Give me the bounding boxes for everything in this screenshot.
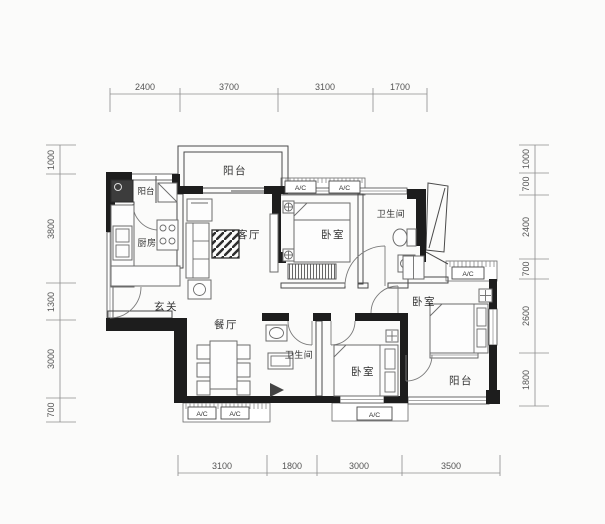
toilet-tank [407,229,416,246]
bedroom-right-door-arc [371,286,398,313]
label-bedroom-top: 卧室 [321,228,345,241]
label-dining: 餐厅 [214,318,238,331]
bath-bottom-door-arc [288,321,312,345]
side-table [188,280,211,299]
label-bath-top: 卫生间 [377,208,406,219]
dim-bottom-1: 3100 [212,461,232,471]
sofa [186,223,209,278]
armchair [187,199,212,221]
rug [212,230,239,258]
label-bedroom-right: 卧室 [412,295,436,308]
stove [157,220,178,250]
dim-right-3: 2400 [521,217,531,237]
label-living: 客厅 [237,228,261,241]
chair [197,345,210,359]
label-bath-bottom: 卫生间 [285,349,314,360]
dim-top-3: 3100 [315,82,335,92]
kitchen-counter-bottom [111,266,180,286]
entry-door-arc [110,287,141,318]
ac-unit-label: A/C [462,271,473,278]
dim-left-5: 700 [46,402,56,417]
dim-top-2: 3700 [219,82,239,92]
kitchen-balcony-door-arc [133,204,159,230]
dining-table [210,341,237,389]
chair [237,345,250,359]
label-kitchen: 厨房 [137,237,156,248]
dim-right-5: 2600 [521,306,531,326]
dim-left-4: 3000 [46,349,56,369]
label-balcony-left: 阳台 [137,186,154,196]
ac-unit-label: A/C [229,411,240,418]
bed-right [430,304,488,353]
ac-unit-label: A/C [369,412,380,419]
label-balcony-top: 阳台 [223,164,247,177]
dim-right-1: 1000 [521,149,531,169]
bedroom-bottom-door-arc [331,321,355,345]
dim-right-6: 1800 [521,370,531,390]
chair [197,381,210,395]
dim-bottom-4: 3500 [441,461,461,471]
chair [237,363,250,377]
ac-unit-label: A/C [196,411,207,418]
ac-unit-label: A/C [339,185,350,192]
bedroom-top-door-arc [345,246,385,286]
washing-machine [111,180,133,202]
dim-right-4: 700 [521,261,531,276]
shower-head [270,383,284,397]
label-foyer: 玄关 [154,300,178,313]
dim-left-1: 1000 [46,150,56,170]
chair [197,363,210,377]
label-bedroom-bottom: 卧室 [351,365,375,378]
dim-bottom-2: 1800 [282,461,302,471]
balcony-bottom-door-arc [406,355,432,381]
label-balcony-bottom: 阳台 [449,374,473,387]
dresser [288,264,336,279]
floor-plan: 2400 3700 3100 1700 3100 1800 3000 3500 … [0,0,605,524]
chair [237,381,250,395]
dim-right-2: 700 [521,176,531,191]
dim-top-4: 1700 [390,82,410,92]
dim-bottom-3: 3000 [349,461,369,471]
dim-left-3: 1300 [46,292,56,312]
tv-cabinet [270,214,278,272]
toilet [393,229,407,246]
floor-plan-svg: 2400 3700 3100 1700 3100 1800 3000 3500 … [0,0,605,524]
ac-unit-label: A/C [295,185,306,192]
dim-top-1: 2400 [135,82,155,92]
dim-left-2: 3800 [46,219,56,239]
